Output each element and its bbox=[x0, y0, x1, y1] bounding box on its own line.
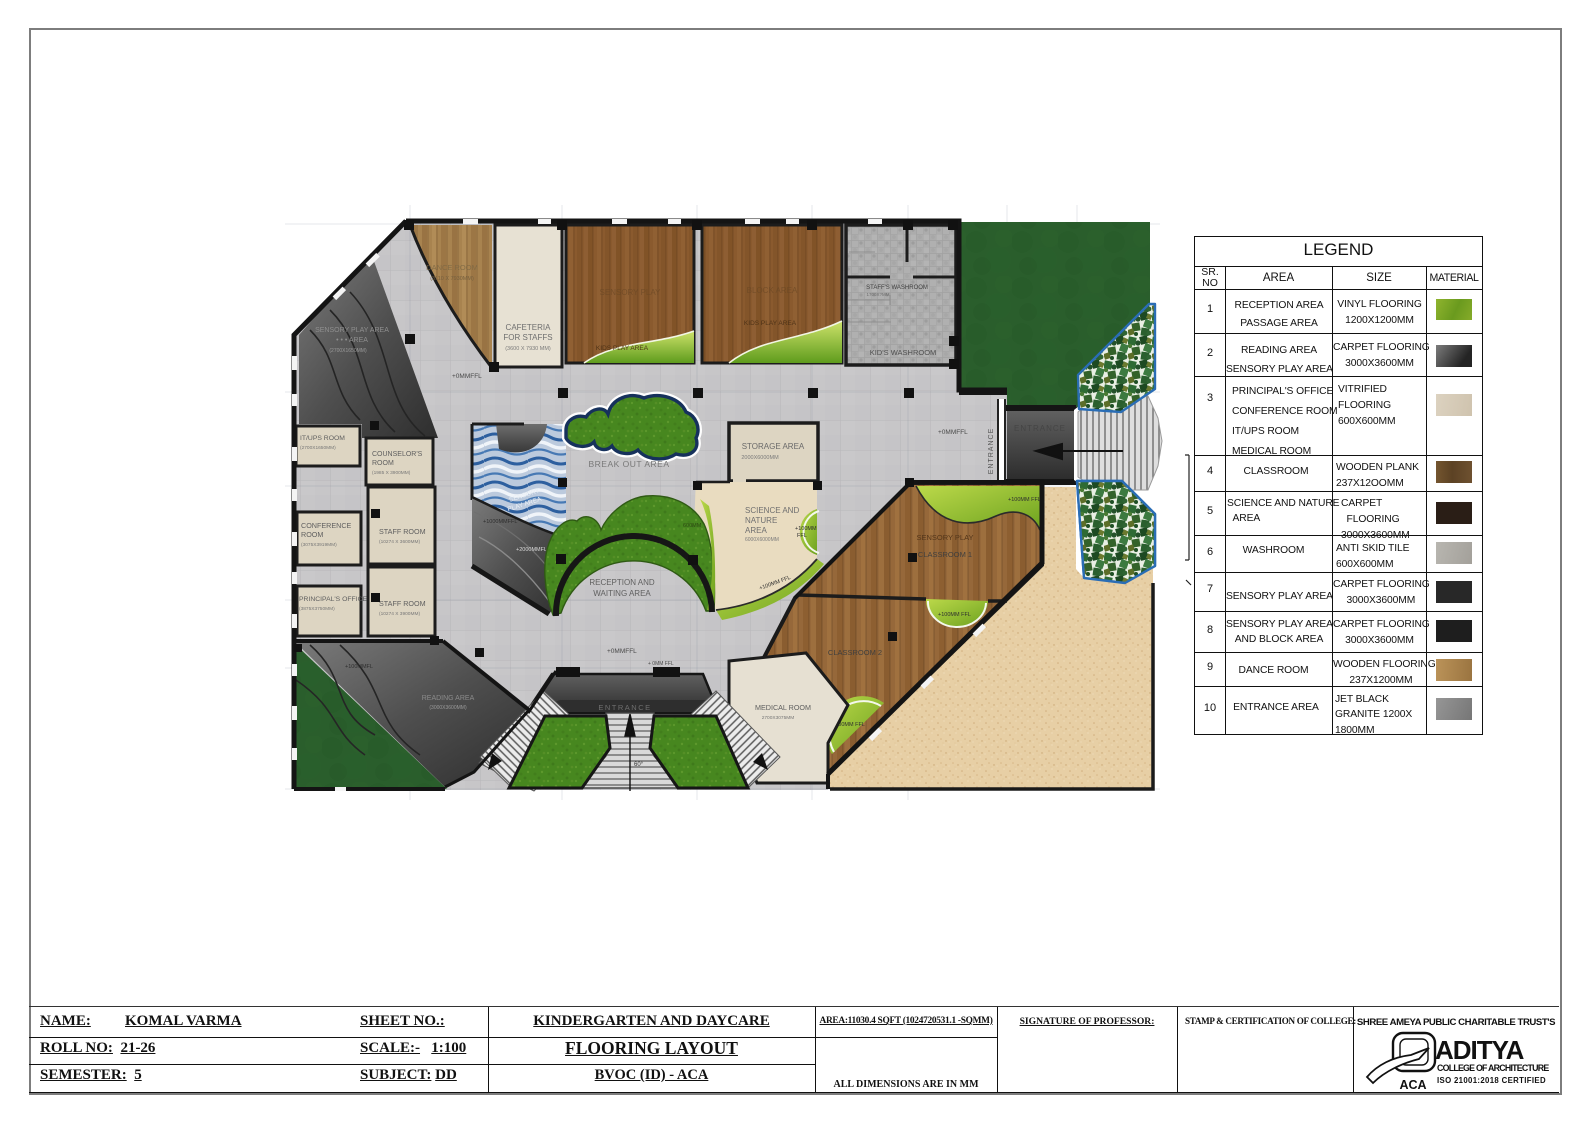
svg-text:2000X6000MM: 2000X6000MM bbox=[741, 455, 779, 461]
svg-text:(3600 X 7930 MM): (3600 X 7930 MM) bbox=[505, 346, 551, 352]
svg-text:CONFERENCE: CONFERENCE bbox=[301, 521, 352, 530]
svg-text:RECEPTION AND: RECEPTION AND bbox=[589, 578, 655, 587]
svg-text:(3110 X 7930MM): (3110 X 7930MM) bbox=[430, 276, 474, 282]
svg-text:KIDS PLAY AREA: KIDS PLAY AREA bbox=[744, 320, 797, 327]
svg-text:60°: 60° bbox=[634, 762, 644, 768]
svg-text:AREA: AREA bbox=[745, 526, 767, 535]
svg-text:+100MM FFL: +100MM FFL bbox=[938, 612, 971, 618]
svg-text:+2000MMFL: +2000MMFL bbox=[516, 547, 547, 553]
svg-text:PRINCIPAL'S OFFICE: PRINCIPAL'S OFFICE bbox=[299, 596, 367, 603]
svg-text:CLASSROOM 2: CLASSROOM 2 bbox=[828, 648, 882, 657]
svg-text:(3000X3600MM): (3000X3600MM) bbox=[429, 705, 467, 711]
svg-text:BREAK OUT AREA: BREAK OUT AREA bbox=[588, 459, 669, 469]
svg-text:+0MMFFL: +0MMFFL bbox=[607, 648, 637, 655]
svg-text:SENSORY PLAY AREA: SENSORY PLAY AREA bbox=[315, 327, 389, 334]
svg-text:MEDICAL ROOM: MEDICAL ROOM bbox=[755, 703, 811, 712]
svg-text:KIDS PLAY AREA: KIDS PLAY AREA bbox=[596, 345, 649, 352]
svg-text:KID'S WASHROOM: KID'S WASHROOM bbox=[870, 348, 937, 357]
svg-text:FOR STAFFS: FOR STAFFS bbox=[503, 333, 552, 342]
svg-text:STORAGE AREA: STORAGE AREA bbox=[742, 442, 805, 451]
svg-text:2700X3075MM: 2700X3075MM bbox=[762, 715, 795, 721]
svg-text:ENTRANCE: ENTRANCE bbox=[598, 703, 651, 712]
svg-text:NATURE: NATURE bbox=[745, 516, 777, 525]
svg-text:+100MM FFL: +100MM FFL bbox=[1008, 497, 1041, 503]
svg-text:(2700X1650MM): (2700X1650MM) bbox=[300, 445, 336, 451]
svg-text:IT/UPS ROOM: IT/UPS ROOM bbox=[300, 435, 345, 442]
svg-text:DANCE ROOM: DANCE ROOM bbox=[426, 263, 478, 272]
svg-text:1700X?MM: 1700X?MM bbox=[866, 292, 889, 297]
svg-text:(3875X3750MM): (3875X3750MM) bbox=[299, 606, 335, 612]
svg-text:+0MMFFL: +0MMFFL bbox=[938, 429, 968, 436]
svg-text:CLASSROOM 1: CLASSROOM 1 bbox=[918, 550, 972, 559]
svg-text:BLOCK AREA: BLOCK AREA bbox=[747, 286, 798, 295]
svg-text:SCIENCE AND: SCIENCE AND bbox=[745, 506, 799, 515]
svg-text:+100MMFL: +100MMFL bbox=[345, 664, 373, 670]
svg-text:STAFF ROOM: STAFF ROOM bbox=[379, 599, 426, 608]
svg-text:+100MM: +100MM bbox=[795, 526, 817, 532]
svg-text:• • • AREA: • • • AREA bbox=[336, 337, 368, 344]
svg-text:+1000MMFFL: +1000MMFFL bbox=[483, 519, 517, 525]
svg-text:STAFF'S WASHROOM: STAFF'S WASHROOM bbox=[866, 285, 928, 291]
svg-text:(3075X3919MM): (3075X3919MM) bbox=[301, 542, 337, 548]
svg-text:(10274 X 3900MM): (10274 X 3900MM) bbox=[379, 611, 420, 617]
svg-text:ENTRANCE: ENTRANCE bbox=[988, 428, 995, 475]
svg-text:ACA: ACA bbox=[1399, 1078, 1426, 1091]
svg-text:ROOM: ROOM bbox=[301, 530, 323, 539]
svg-text:SENSORY PLAY: SENSORY PLAY bbox=[916, 533, 973, 542]
svg-text:STAFF ROOM: STAFF ROOM bbox=[379, 527, 426, 536]
svg-text:READING AREA: READING AREA bbox=[422, 695, 475, 702]
svg-text:COUNSELOR'S: COUNSELOR'S bbox=[372, 451, 423, 458]
svg-text:WAITING AREA: WAITING AREA bbox=[593, 589, 651, 598]
svg-text:(1985 X 3900MM): (1985 X 3900MM) bbox=[372, 470, 411, 476]
svg-text:+0MMFFL: +0MMFFL bbox=[452, 373, 482, 380]
svg-text:600MM: 600MM bbox=[683, 523, 702, 529]
svg-text:(10274 X 3600MM): (10274 X 3600MM) bbox=[379, 539, 420, 545]
svg-text:SENSORY PLAY: SENSORY PLAY bbox=[600, 288, 662, 297]
svg-text:+ 0MM FFL: + 0MM FFL bbox=[648, 661, 674, 667]
svg-text:CAFETERIA: CAFETERIA bbox=[506, 323, 552, 332]
svg-text:6000X6000MM: 6000X6000MM bbox=[745, 537, 779, 543]
svg-text:ENTRANCE: ENTRANCE bbox=[1014, 424, 1066, 433]
svg-text:(2700X1650MM): (2700X1650MM) bbox=[329, 348, 367, 354]
svg-text:ROOM: ROOM bbox=[372, 460, 394, 467]
svg-text:FFL: FFL bbox=[797, 533, 807, 539]
